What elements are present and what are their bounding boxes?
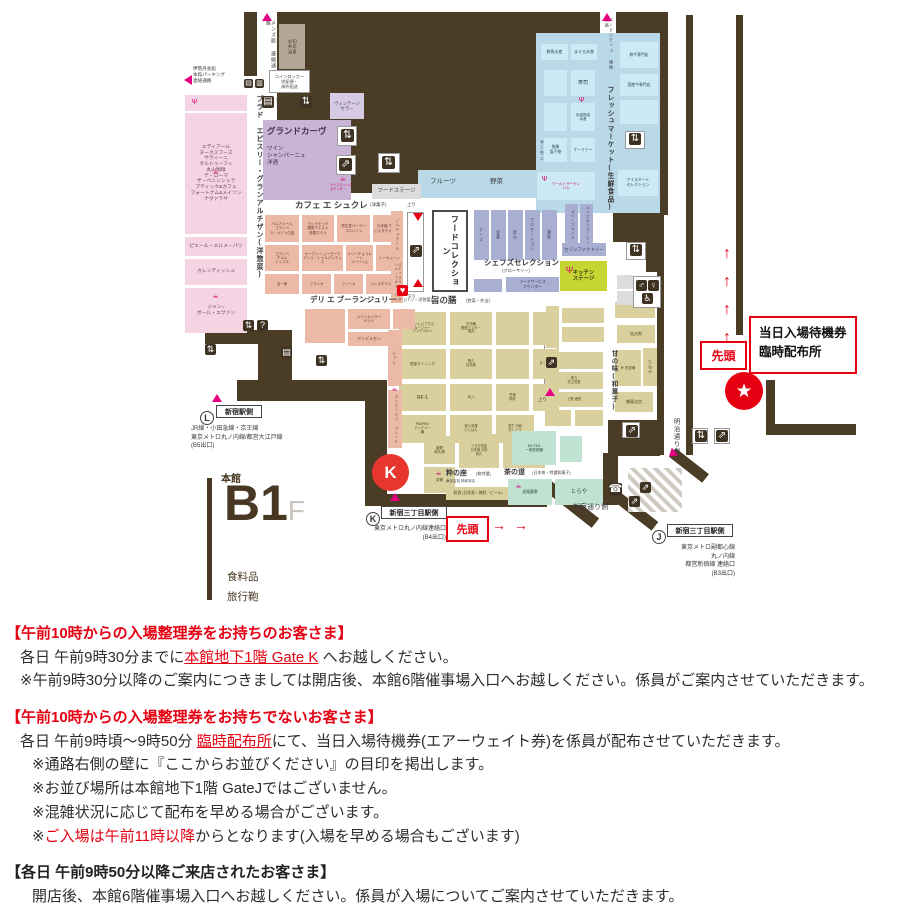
notice-line: ※通路右側の壁に『ここからお並びください』の目印を掲出します。	[6, 753, 916, 777]
womens-restroom-icon: ♀	[648, 280, 659, 291]
elevator-icon: ⇅	[243, 320, 254, 331]
notice-text: にて、当日入場待機券(エアーウェイト券)を係員が配布させていただきます。	[272, 733, 790, 750]
map-label: シェフズセレクション	[484, 258, 562, 268]
direction-triangle-icon	[545, 388, 555, 396]
notice-text: へお越しください。	[318, 649, 457, 666]
distribution-callout-line2: 臨時配布所	[759, 343, 851, 362]
map-label: フルーツ	[430, 178, 474, 188]
cafe-icon: ☕	[338, 174, 348, 184]
coin-locker-icon: ▤	[244, 79, 253, 88]
notice-line: ※ご入場は午前11時以降からとなります(入場を早める場合もございます)	[6, 825, 916, 849]
map-shop-box	[496, 312, 529, 345]
cafe-icon: ☕	[211, 168, 220, 177]
notice-link[interactable]: 本館地下1階 Gate K	[184, 649, 318, 666]
coin-locker-icon: ▤	[262, 96, 274, 108]
notice-line: 各日 午前9時30分までに本館地下1階 Gate K へお越しください。	[6, 646, 916, 670]
restaurant-icon: Ψ	[564, 265, 575, 276]
map-shop-box	[474, 279, 502, 292]
map-shop-box: 資生堂パーラー コロンバン	[337, 215, 370, 242]
notice-text: ご入場は午前11時以降	[45, 828, 196, 845]
map-shop-box: プロモーション	[525, 210, 540, 260]
map-label: テイスティング カウンター	[330, 183, 356, 195]
map-shop-box: フィーカ	[334, 274, 363, 294]
map-wall	[660, 25, 668, 215]
map-shop-box: コインロッカー 宅配便・ 海外配送	[269, 70, 310, 93]
map-shop-box: たねや	[643, 348, 657, 386]
map-shop-box: 治一郎	[265, 274, 299, 294]
delivery-icon: ▥	[255, 79, 264, 88]
map-shop-box: ケーファー	[571, 138, 595, 162]
map-shop-box: つきぢ松露 日本橋 弁松 魚久	[459, 434, 499, 468]
floor-label-bar	[207, 478, 212, 600]
map-shop-box: オリーブオイル	[565, 204, 578, 246]
map-shop-box: ヨックモック 銀座ウエスト 帝国ホテル	[302, 215, 334, 242]
map-shop-box	[575, 410, 603, 426]
notice-text: ※午前9時30分以降のご案内につきましては開店後、本館6階催事場入口へお越しくだ…	[20, 672, 874, 689]
distribution-callout-line1: 当日入場待機券	[759, 324, 851, 343]
phone-icon: ☎	[609, 483, 622, 496]
map-label: ワイン シャンパーニュ 洋酒	[267, 146, 329, 178]
aed-icon: ♥	[397, 285, 408, 296]
notice-link[interactable]: 臨時配布所	[197, 733, 272, 750]
map-shop-box: 古市庵 銀座アスター 瑞兆	[450, 312, 492, 345]
station-gate-circle-l: L	[200, 411, 214, 425]
direction-triangle-icon	[212, 394, 222, 402]
station-lines-l: JR線・小田急線・京王線 東京メトロ丸ノ内線/都営大江戸線 (B5出口)	[191, 425, 336, 451]
map-label: 東京吉兆 柿安本店	[446, 479, 508, 486]
accessible-icon: ♿	[642, 293, 653, 304]
coin-locker-icon: ▤	[281, 347, 292, 358]
notice-text: ※混雑状況に応じて配布を早める場合がございます。	[32, 804, 388, 821]
map-label: プラド エピスリー・グランアルチザン(洋惣菜)	[249, 95, 263, 333]
map-label: 粋の座	[446, 469, 476, 478]
elevator-icon: ⇅	[382, 156, 395, 169]
direction-triangle-icon	[390, 493, 400, 501]
notice-block: 【各日 午前9時50分以降ご来店されたお客さま】開店後、本館6階催事場入口へお越…	[6, 861, 916, 908]
information-icon: ?	[257, 320, 268, 331]
mens-restroom-icon: ♂	[636, 280, 647, 291]
map-label: グランドカーヴ	[267, 126, 349, 138]
map-shop-box: ゴディバ デメル トップス	[265, 245, 299, 271]
map-shop-box: カレンディッシュ	[185, 259, 247, 285]
map-wall	[736, 15, 743, 335]
map-shop-box: 国産牛専門店	[620, 74, 658, 96]
escalator-icon: ⇗	[546, 357, 557, 368]
cafe-icon: ☕	[211, 292, 220, 301]
queue-head-label-gate-k: 先頭	[446, 516, 489, 542]
map-shop-box: ベルアメール ゴディバ ラ・メゾン白金	[265, 215, 299, 242]
restaurant-icon: Ψ	[577, 96, 586, 105]
map-shop-box: フードステージ	[372, 184, 421, 199]
station-gate-name-j: 新宿三丁目駅側	[667, 524, 733, 537]
map-shop-box	[305, 309, 345, 343]
map-shop-box: 匠心	[508, 210, 523, 260]
map-shop-box: 鶴屋吉信	[615, 392, 653, 412]
queue-direction-arrow-up: ↑	[723, 302, 731, 318]
map-shop-box: ヴィンテージ セラー	[330, 93, 364, 119]
map-shop-box	[544, 103, 567, 131]
map-label: 明治通り側	[666, 418, 678, 504]
floor-number: B1F	[224, 478, 305, 528]
map-shop-box	[560, 436, 582, 462]
map-wall	[766, 424, 856, 435]
map-shop-box	[496, 349, 529, 379]
map-wall	[536, 12, 600, 35]
escalator-icon: ⇗	[339, 158, 352, 171]
floor-number-text: B1	[224, 475, 288, 531]
map-shop-box	[545, 410, 571, 426]
map-wall	[646, 242, 662, 272]
elevator-icon: ⇅	[316, 355, 327, 366]
map-shop-box: 寿司	[571, 70, 595, 96]
map-shop-box: RF-1	[399, 384, 446, 411]
escalator-icon: ⇗	[626, 425, 638, 437]
escalator-icon: ⇗	[410, 245, 422, 257]
notice-text: 各日 午前9時頃〜9時50分	[20, 733, 197, 750]
direction-triangle-icon	[262, 13, 272, 21]
map-wall	[237, 380, 370, 401]
direction-triangle-icon	[413, 213, 423, 221]
notice-block: 【午前10時からの入場整理券をお持ちのお客さま】各日 午前9時30分までに本館地…	[6, 622, 916, 693]
map-shop-box	[544, 70, 567, 96]
map-label: 伊勢丹会館 本館パーキング 連絡通路	[193, 66, 247, 92]
elevator-icon: ⇅	[341, 129, 354, 142]
station-gate-name-k: 新宿三丁目駅側	[381, 506, 447, 519]
map-shop-box: とらや	[555, 479, 603, 505]
waiting-ticket-distribution-callout: 当日入場待機券 臨時配布所	[749, 316, 857, 374]
map-label: 茶の道	[504, 468, 532, 477]
notice-text: 各日 午前9時30分までに	[20, 649, 184, 666]
escalator-icon: ⇗	[629, 496, 640, 507]
notice-line: 各日 午前9時頃〜9時50分 臨時配布所にて、当日入場待機券(エアーウェイト券)…	[6, 730, 916, 754]
map-label: 上り	[538, 397, 560, 405]
elevator-icon: ⇅	[300, 96, 312, 108]
map-shop-box: フードサービス カウンター	[506, 277, 559, 292]
map-wall	[613, 212, 662, 242]
map-shop-box: オーブン ニューヨーク アンリ・シャルパンティエ	[302, 245, 343, 271]
map-shop-box: 叶 匠壽庵	[615, 350, 641, 386]
map-label: パークシティ3 連絡通路	[601, 18, 613, 72]
direction-triangle-icon	[413, 279, 423, 287]
restaurant-icon: Ψ	[540, 175, 549, 184]
map-label: (惣菜・弁当)	[466, 298, 508, 306]
map-label: (日本茶・特選和菓子)	[532, 470, 596, 477]
map-label: (グローサリー)	[502, 268, 548, 276]
notice-text: ※通路右側の壁に『ここからお並びください』の目印を掲出します。	[32, 756, 493, 773]
map-shop-box: ピエール・エルメ・パリ	[185, 237, 247, 256]
station-lines-k: 東京メトロ丸ノ内線連絡口 (B4出口)	[346, 525, 446, 542]
map-shop-box: 魚久 加島屋	[450, 349, 492, 379]
notice-block: 【午前10時からの入場整理券をお持ちでないお客さま】各日 午前9時頃〜9時50分…	[6, 706, 916, 848]
map-shop-box	[620, 100, 658, 124]
queue-direction-arrows-right: → →	[492, 517, 530, 533]
gate-k-marker: K	[372, 454, 409, 491]
station-lines-j: 東京メトロ副都心線 丸ノ内線 都営新宿線 連絡口 (B3出口)	[645, 544, 735, 579]
notice-header: 【午前10時からの入場整理券をお持ちでないお客さま】	[6, 706, 916, 730]
map-label: 下り	[407, 294, 425, 302]
cafe-icon: ☕	[434, 469, 443, 478]
map-shop-box: 米八	[450, 384, 492, 411]
map-shop-box: まぐろ水産	[571, 44, 597, 60]
map-label: 野菜	[490, 178, 520, 188]
cafe-icon: ☕	[390, 385, 399, 394]
map-shop-box: 惣菜ダイニング	[399, 349, 446, 379]
map-shop-box: アイスミート セレクション	[618, 170, 658, 196]
map-wall	[686, 15, 693, 455]
notice-section: 【午前10時からの入場整理券をお持ちのお客さま】各日 午前9時30分までに本館地…	[6, 622, 916, 922]
notice-text: ※	[32, 828, 45, 845]
map-shop-box: 豆富	[491, 210, 506, 260]
notice-header: 【午前10時からの入場整理券をお持ちのお客さま】	[6, 622, 916, 646]
notice-line: ※午前9時30分以降のご案内につきましては開店後、本館6階催事場入口へお越しくだ…	[6, 669, 916, 693]
map-shop-box: 鮮魚水産	[541, 44, 568, 60]
map-label: 上り	[407, 202, 425, 210]
map-shop-box: チーズ	[474, 210, 489, 260]
map-shop-box: 和酒 (日本酒・焼酎・ビール)	[446, 487, 510, 500]
notice-text: ※お並び場所は本館地下1階 GateJではございません。	[32, 780, 397, 797]
map-shop-box: 仙太郎	[617, 325, 655, 343]
map-shop-box	[617, 291, 633, 305]
map-label: (和特選)	[476, 471, 502, 478]
map-shop-box: 紫野 和久傳	[424, 436, 455, 464]
map-shop-box	[617, 275, 633, 289]
elevator-icon: ⇅	[205, 344, 216, 355]
queue-direction-arrow-up: ↑	[723, 274, 731, 290]
map-shop-box	[562, 308, 604, 323]
map-shop-box	[546, 306, 559, 348]
direction-triangle-icon	[184, 75, 192, 85]
map-shop-box	[393, 309, 415, 329]
cafe-icon: ☕	[514, 482, 523, 491]
elevator-icon: ⇅	[695, 430, 707, 442]
escalator-icon: ⇗	[716, 430, 728, 442]
station-gate-circle-k: K	[366, 512, 380, 526]
floor-map: 旬の恵 お弁当コインロッカー 宅配便・ 海外配送エディアール ヌークスフーズ サ…	[0, 0, 920, 618]
map-shop-box: 雑穀	[542, 210, 557, 260]
map-shop-box: 魚勝 塩干物	[544, 138, 567, 162]
map-shop-box: 魚力 富士見堂	[545, 372, 603, 389]
map-shop-box: 氷温熟成 水産	[571, 103, 595, 131]
map-shop-box: レフレ	[388, 330, 402, 386]
elevator-icon: ⇅	[629, 133, 641, 145]
notice-line: ※混雑状況に応じて配布を早める場合がございます。	[6, 801, 916, 825]
map-label: (洋菓子)	[370, 202, 404, 211]
map-label: 甘の味(和菓子)	[603, 350, 616, 416]
floor-departments: 食料品 旅行鞄	[227, 568, 259, 608]
notice-line: 開店後、本館6階催事場入口へお越しください。係員が入場についてご案内させていただ…	[6, 885, 916, 909]
map-label: フレッシュマーケット(生鮮食品)	[599, 86, 613, 214]
distribution-star-marker: ★	[725, 372, 763, 410]
direction-triangle-icon	[602, 13, 612, 21]
notice-header: 【各日 午前9時50分以降ご来店されたお客さま】	[6, 861, 916, 885]
station-gate-circle-j: J	[652, 530, 666, 544]
map-shop-box: 旬の恵 お弁当	[279, 24, 305, 69]
map-shop-box: フードコレクション	[432, 210, 468, 292]
notice-text: 開店後、本館6階催事場入口へお越しください。係員が入場についてご案内させていただ…	[32, 888, 683, 905]
map-shop-box: キャピタルコーヒー	[580, 204, 593, 246]
floor-suffix: F	[288, 495, 305, 526]
map-shop-box: ノムドゥテール	[391, 211, 403, 257]
map-label: メンズ館 連絡通路	[259, 20, 275, 72]
notice-text: からとなります(入場を早める場合もございます)	[195, 828, 520, 845]
station-gate-name-l: 新宿駅側	[216, 405, 262, 418]
queue-direction-arrow-up: ↑	[723, 246, 731, 262]
star-icon: ★	[735, 380, 752, 403]
escalator-icon: ⇗	[640, 482, 651, 493]
map-label: デリ エ ブーランジュリー	[310, 295, 406, 305]
map-shop-box: フランセ	[302, 274, 331, 294]
map-shop-box: メリーチョコレート ユーハイム	[346, 245, 373, 271]
map-shop-box: 和牛専門店	[620, 42, 658, 68]
map-shop-box: メゾンカイザー サンド	[348, 309, 390, 329]
map-shop-box: 豆狸 柿安	[496, 384, 529, 411]
queue-head-label-distribution: 先頭	[700, 341, 747, 370]
map-shop-box	[562, 327, 604, 342]
map-shop-box: マリアージュ フレール	[388, 390, 402, 448]
map-shop-box: アンデルセン	[348, 332, 390, 346]
notice-line: ※お並び場所は本館地下1階 GateJではございません。	[6, 777, 916, 801]
map-shop-box: セゾンファクトリー	[562, 243, 606, 256]
restaurant-icon: Ψ	[190, 98, 199, 107]
elevator-icon: ⇅	[630, 244, 642, 256]
map-shop-box: EN TEA 一保堂茶舗	[512, 431, 556, 465]
